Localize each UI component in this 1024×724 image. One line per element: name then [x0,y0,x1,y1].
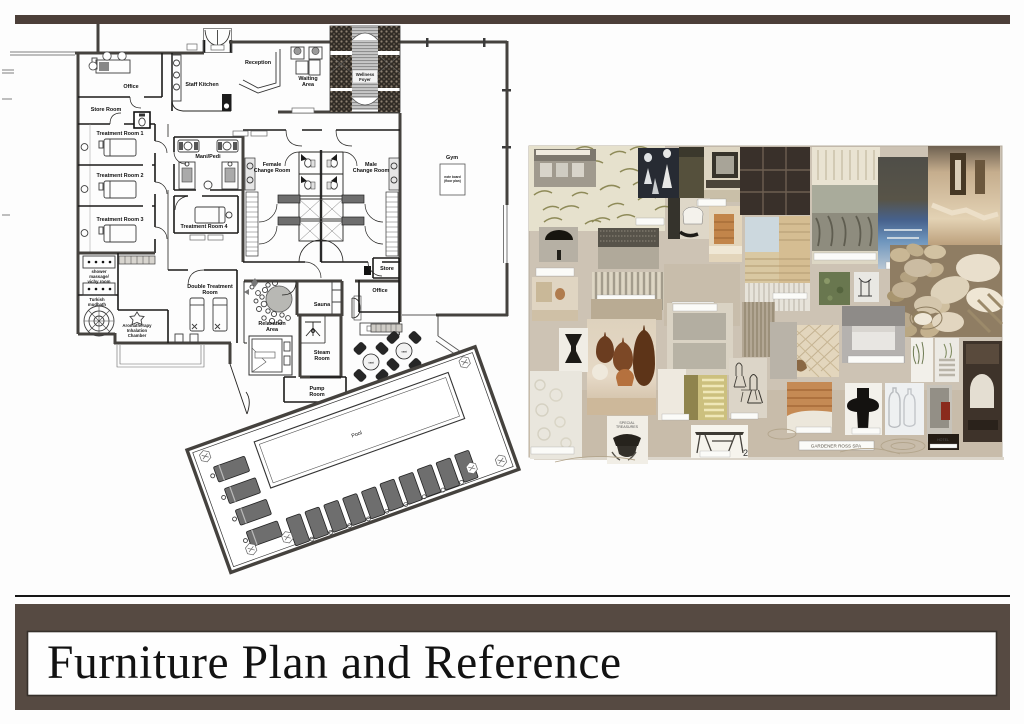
svg-text:Foyer: Foyer [359,77,371,82]
svg-text:Sauna: Sauna [314,302,331,308]
svg-text:Change Room: Change Room [353,168,390,174]
svg-text:seat: seat [368,361,373,365]
svg-text:GARDENER ROSS SPA: GARDENER ROSS SPA [811,444,862,449]
svg-text:Change Room: Change Room [254,168,291,174]
svg-text:Mani/Pedi: Mani/Pedi [195,154,221,160]
svg-text:Furniture Plan and Reference: Furniture Plan and Reference [47,637,622,689]
svg-text:Store: Store [380,266,394,272]
svg-text:mudbath: mudbath [88,302,107,307]
svg-text:vichy room: vichy room [88,279,111,284]
svg-text:Store Room: Store Room [91,107,122,113]
svg-text:Gym: Gym [446,155,458,161]
svg-text:Area: Area [266,327,279,333]
svg-text:TREASURES: TREASURES [616,425,639,429]
svg-text:Treatment Room 1: Treatment Room 1 [96,131,143,137]
svg-text:Room: Room [314,356,329,362]
svg-text:Office: Office [123,84,138,90]
svg-text:2: 2 [743,448,748,458]
svg-text:Staff Kitchen: Staff Kitchen [185,82,218,88]
svg-text:Reception: Reception [245,60,271,66]
svg-text:Office: Office [372,288,387,294]
svg-text:Chamber: Chamber [128,333,147,338]
svg-text:Treatment Room 4: Treatment Room 4 [180,224,227,230]
svg-text:(floor plan): (floor plan) [444,179,461,183]
svg-text:Room: Room [309,392,324,398]
svg-text:Treatment Room 2: Treatment Room 2 [96,173,143,179]
svg-text:HOTEL: HOTEL [937,438,949,442]
svg-text:seat: seat [401,350,406,354]
svg-text:Treatment Room 3: Treatment Room 3 [96,217,143,223]
svg-text:Room: Room [202,290,217,296]
svg-text:Area: Area [302,82,315,88]
